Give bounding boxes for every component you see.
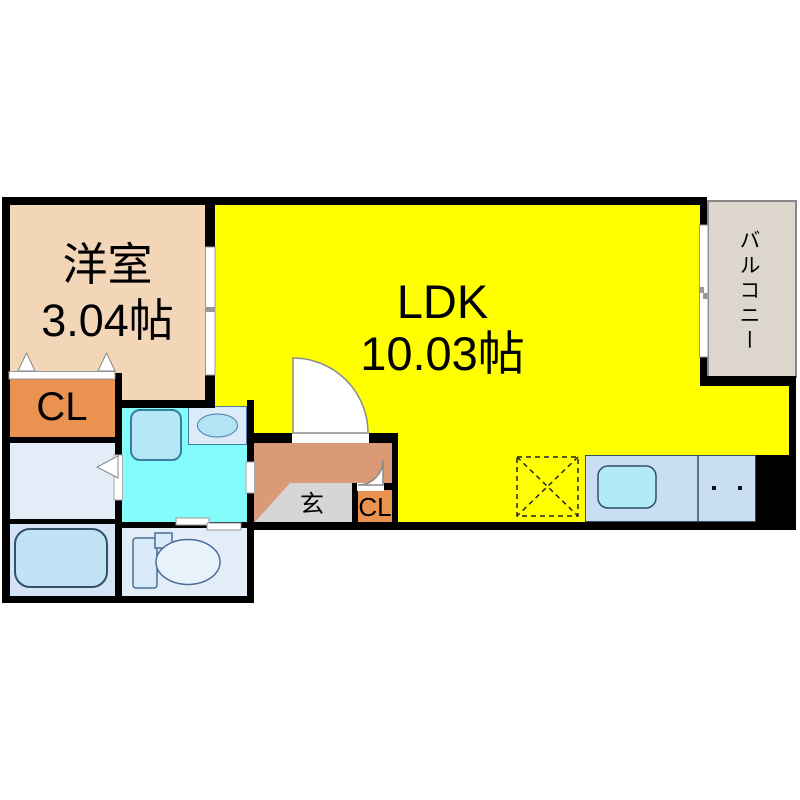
refrigerator-space-icon xyxy=(517,457,578,516)
toilet-icon xyxy=(133,533,220,588)
window-sash-tick xyxy=(703,293,708,299)
sanitary-hall-door-opening xyxy=(246,462,255,493)
closet-main-label: CL xyxy=(9,383,115,431)
toilet-sliding-door-icon xyxy=(207,523,241,530)
western-room-label: 洋室 3.04帖 xyxy=(10,237,205,350)
stove-burner-dot xyxy=(738,486,742,490)
ldk-size: 10.03帖 xyxy=(360,327,525,380)
toilet-sliding-door-icon xyxy=(176,518,209,525)
western-room-name: 洋室 xyxy=(62,239,152,290)
kitchen-sink-icon xyxy=(598,466,656,508)
plan-symbols xyxy=(0,0,800,800)
closet-entry-label: CL xyxy=(352,492,398,523)
floor-plan: 洋室 3.04帖 LDK 10.03帖 CL CL 玄 バルコニー xyxy=(0,0,800,800)
entrance-label: 玄 xyxy=(292,491,332,520)
entry-closet-door-arc-icon xyxy=(358,460,383,485)
ldk-label: LDK 10.03帖 xyxy=(320,276,565,379)
stove-burner-dot xyxy=(712,486,716,490)
western-room-size: 3.04帖 xyxy=(41,295,174,346)
closet-folding-door-icon xyxy=(9,372,115,380)
balcony-label: バルコニー xyxy=(733,216,763,366)
folding-door-triangle-icon xyxy=(18,353,35,371)
folding-door-triangle-icon xyxy=(98,353,115,371)
washroom-door-swing-icon xyxy=(97,456,118,478)
sliding-door-handle xyxy=(206,307,216,312)
window-sash-tick xyxy=(700,287,705,293)
vanity-basin-icon xyxy=(198,414,238,437)
ldk-name: LDK xyxy=(397,275,488,328)
